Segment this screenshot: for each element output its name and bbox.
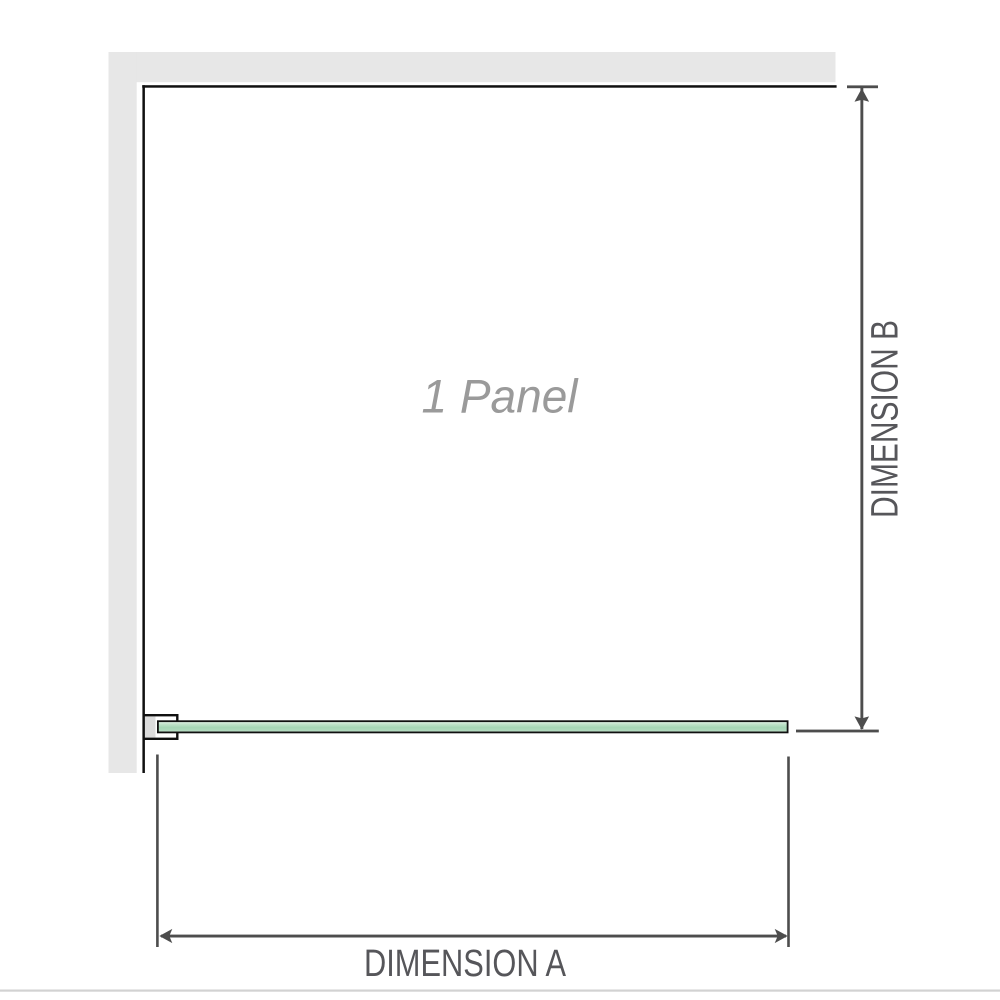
svg-text:DIMENSION B: DIMENSION B: [864, 320, 906, 518]
svg-text:1 Panel: 1 Panel: [422, 369, 580, 422]
svg-text:DIMENSION A: DIMENSION A: [364, 943, 567, 985]
